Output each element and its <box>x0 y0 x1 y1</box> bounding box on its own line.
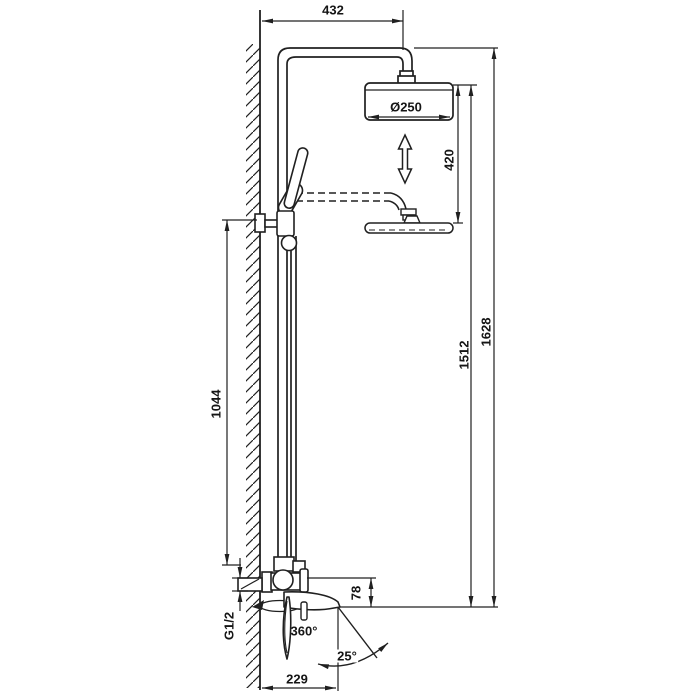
bracket-arm <box>265 220 278 227</box>
dim-spout-reach-label: 229 <box>286 673 308 686</box>
dim-overall-height-label: 1628 <box>480 318 493 347</box>
dim-head-height-label: 1512 <box>458 341 471 370</box>
dim-height-adjustment-label: 420 <box>443 149 456 171</box>
riser-pipe <box>278 48 412 570</box>
dim-top-offset-label: 432 <box>322 4 344 17</box>
mixer-knob <box>273 570 293 590</box>
handle-tilt-label: 25° <box>336 650 358 663</box>
lower-head-phantom <box>296 193 453 233</box>
mixer-end-cap <box>300 569 308 592</box>
up-down-arrow-icon <box>399 135 412 183</box>
dim-spout-drop-label: 78 <box>350 586 363 600</box>
dim-head-diameter-label: Ø250 <box>390 101 422 114</box>
spout-body <box>284 592 340 610</box>
inlet-thread-label: G1/2 <box>223 612 236 640</box>
lower-connector-nut <box>401 209 416 215</box>
dim-riser-height-label: 1044 <box>210 390 223 419</box>
hand-shower <box>255 147 309 251</box>
spout-swivel-label: 360° <box>291 625 318 638</box>
mixer-top-fitting <box>274 557 294 571</box>
bracket-clamp <box>277 211 294 236</box>
diverter-stub <box>301 602 307 620</box>
bracket-wall-mount <box>255 214 265 232</box>
shower-dimension-drawing: 432 Ø250 420 1512 1628 1044 78 G1/2 360°… <box>0 0 700 700</box>
lower-head-disc <box>365 223 453 233</box>
mixer-valve <box>262 557 308 592</box>
bracket-knob <box>282 236 297 251</box>
lower-head-hub <box>404 216 420 223</box>
inlet-stub <box>238 578 262 591</box>
